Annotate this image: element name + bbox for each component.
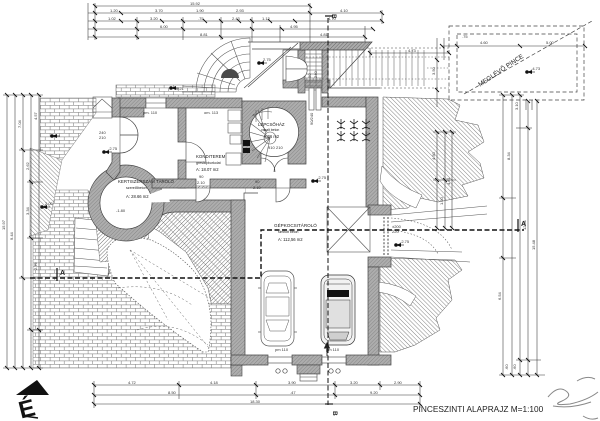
- svg-text:15.48: 15.48: [531, 239, 536, 250]
- svg-text:4.18: 4.18: [210, 380, 219, 385]
- svg-text:9.20: 9.20: [370, 390, 379, 395]
- svg-text:-2.75: -2.75: [108, 146, 118, 151]
- svg-text:4.73: 4.73: [408, 48, 417, 53]
- svg-text:greslapburkolat: greslapburkolat: [196, 161, 221, 165]
- svg-text:210: 210: [99, 135, 106, 140]
- svg-text:4.95: 4.95: [290, 24, 299, 29]
- svg-text:pm. 110: pm. 110: [143, 110, 158, 115]
- svg-text:vasalt beton: vasalt beton: [261, 128, 279, 132]
- svg-text:.75: .75: [462, 34, 468, 39]
- svg-text:2.43: 2.43: [232, 16, 241, 21]
- svg-text:.60: .60: [504, 364, 509, 370]
- svg-text:6.54: 6.54: [497, 291, 502, 300]
- svg-text:5.00: 5.00: [546, 40, 555, 45]
- svg-text:8.06 m2: 8.06 m2: [264, 134, 280, 139]
- svg-text:4.57: 4.57: [33, 111, 38, 120]
- svg-text:4.70: 4.70: [328, 16, 337, 21]
- svg-text:szerelőbeton: szerelőbeton: [126, 186, 147, 190]
- svg-text:A: 28.66 m2: A: 28.66 m2: [126, 194, 149, 199]
- svg-text:3.20: 3.20: [150, 16, 159, 21]
- svg-text:-2.75: -2.75: [400, 239, 410, 244]
- svg-text:2.62: 2.62: [25, 161, 30, 170]
- svg-text:.60: .60: [512, 364, 517, 370]
- svg-text:2.79: 2.79: [33, 261, 38, 270]
- svg-text:240: 240: [313, 71, 318, 78]
- svg-text:pm 110: pm 110: [275, 347, 289, 352]
- svg-text:4.81: 4.81: [320, 32, 329, 37]
- svg-text:1.50: 1.50: [439, 196, 444, 205]
- svg-text:9.44: 9.44: [9, 231, 14, 240]
- svg-text:KONDITEREM: KONDITEREM: [196, 154, 226, 159]
- svg-text:4.61: 4.61: [446, 176, 451, 185]
- svg-text:4.60: 4.60: [480, 40, 489, 45]
- svg-text:1.12: 1.12: [262, 16, 271, 21]
- svg-text:0.21: 0.21: [176, 86, 185, 91]
- svg-text:90: 90: [307, 73, 312, 78]
- svg-text:.47: .47: [290, 390, 296, 395]
- svg-text:2.93: 2.93: [236, 8, 245, 13]
- svg-text:15.92: 15.92: [190, 1, 201, 6]
- svg-text:1.20: 1.20: [110, 8, 119, 13]
- svg-text:LÉPCSŐHÁZ: LÉPCSŐHÁZ: [258, 122, 285, 127]
- svg-text:1.90: 1.90: [196, 8, 205, 13]
- svg-text:B: B: [331, 411, 338, 416]
- svg-text:8.34: 8.34: [506, 151, 511, 160]
- svg-text:4.10: 4.10: [340, 8, 349, 13]
- svg-text:A: 112,56 m2: A: 112,56 m2: [278, 237, 303, 242]
- svg-text:2.75: 2.75: [263, 57, 272, 62]
- svg-text:90: 90: [255, 179, 260, 184]
- svg-text:8.50: 8.50: [168, 390, 177, 395]
- svg-text:.75: .75: [198, 16, 204, 21]
- svg-text:4.50: 4.50: [431, 151, 436, 160]
- svg-text:-1.80: -1.80: [116, 208, 126, 213]
- svg-text:om. 113: om. 113: [204, 110, 219, 115]
- svg-text:3.90: 3.90: [288, 380, 297, 385]
- svg-text:4.72: 4.72: [128, 380, 137, 385]
- svg-text:18.30: 18.30: [250, 399, 261, 404]
- svg-text:1.02: 1.02: [108, 16, 117, 21]
- svg-text:90: 90: [199, 174, 204, 179]
- svg-text:8.81: 8.81: [200, 32, 209, 37]
- svg-text:-4.73: -4.73: [531, 66, 541, 71]
- svg-text:6.00: 6.00: [160, 24, 169, 29]
- svg-text:90/240: 90/240: [309, 112, 314, 125]
- svg-text:PINCESZINTI ALAPRAJZ M=1:100: PINCESZINTI ALAPRAJZ M=1:100: [413, 404, 544, 414]
- svg-text:12.01: 12.01: [522, 219, 527, 230]
- svg-text:3.10: 3.10: [514, 101, 519, 110]
- svg-text:2.10: 2.10: [197, 180, 206, 185]
- svg-text:15.97: 15.97: [1, 219, 6, 230]
- svg-text:simított beton: simított beton: [278, 230, 298, 234]
- svg-text:910: 910: [268, 145, 275, 150]
- svg-text:2.00: 2.00: [45, 201, 54, 206]
- svg-text:220: 220: [392, 229, 399, 234]
- svg-text:-2.75: -2.75: [317, 175, 327, 180]
- svg-text:3.70: 3.70: [155, 8, 164, 13]
- svg-text:3.20: 3.20: [350, 380, 359, 385]
- svg-text:A: 18.07 m2: A: 18.07 m2: [196, 167, 219, 172]
- svg-text:2.90: 2.90: [394, 380, 403, 385]
- svg-text:KERTISZERSZÁM TÁROLÓ: KERTISZERSZÁM TÁROLÓ: [118, 179, 175, 184]
- svg-text:3.50: 3.50: [431, 66, 436, 75]
- svg-text:2.10: 2.10: [253, 185, 262, 190]
- svg-text:GÉPKOCSITÁROLÓ: GÉPKOCSITÁROLÓ: [274, 222, 317, 228]
- svg-text:3.34: 3.34: [25, 206, 30, 215]
- svg-text:7.04: 7.04: [17, 119, 22, 128]
- svg-text:210: 210: [276, 145, 283, 150]
- svg-text:A: A: [60, 270, 65, 277]
